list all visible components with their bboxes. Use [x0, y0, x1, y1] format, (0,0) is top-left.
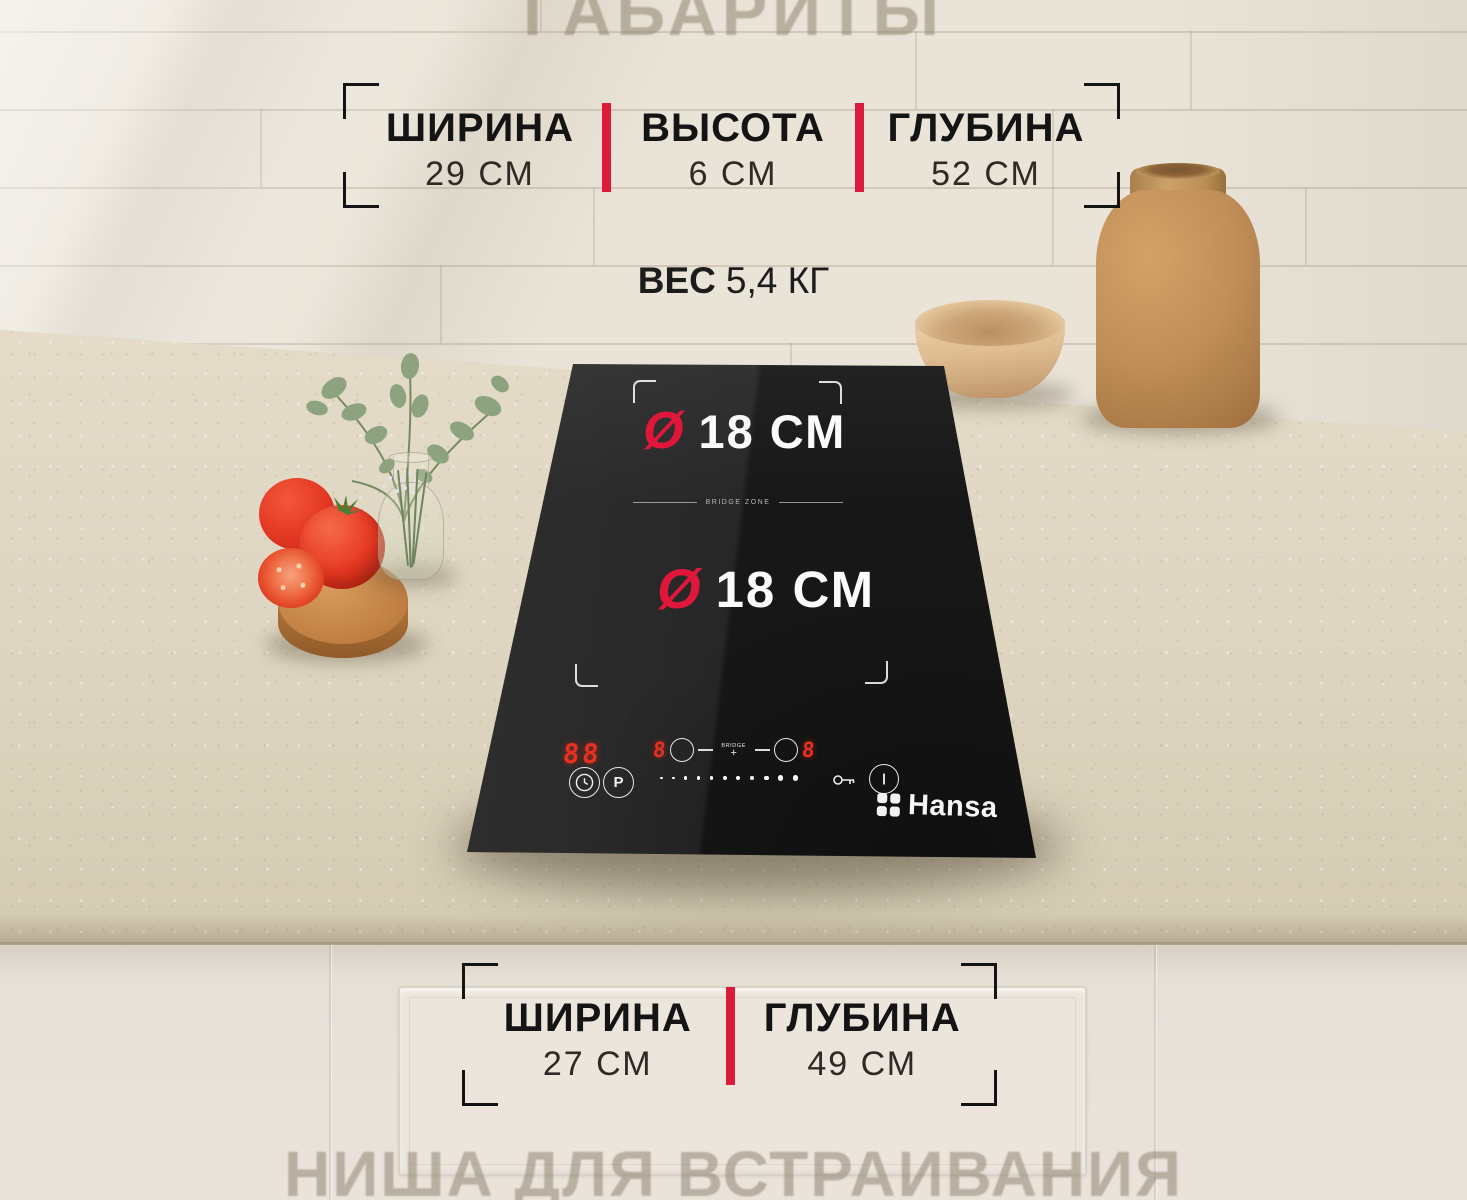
dimension-value: 27 СМ: [470, 1047, 726, 1081]
zone2-diameter-label: Ø 18 СМ: [657, 561, 875, 617]
jug-mouth: [1136, 163, 1220, 179]
bridge-plus: +: [717, 749, 751, 757]
bowl-rim: [915, 300, 1065, 346]
dimension-label: ГЛУБИНА: [735, 998, 991, 1038]
timer-display: 88: [562, 741, 603, 768]
watermark-top: ГАБАРИТЫ: [0, 0, 1467, 46]
dimension-label: ШИРИНА: [470, 998, 726, 1038]
zone2-diameter-value: 18 СМ: [716, 564, 876, 615]
slider-dot[interactable]: [793, 775, 798, 780]
bridge-control[interactable]: 8 BRIDGE + 8: [653, 736, 814, 764]
dimension-label: ШИРИНА: [358, 108, 602, 148]
tile-grout: [260, 109, 262, 187]
bridge-link-line: [698, 749, 713, 751]
bridge-link-label: BRIDGE +: [717, 743, 751, 757]
slider-dot[interactable]: [660, 777, 663, 780]
jug-body: [1096, 190, 1260, 428]
red-divider: [855, 103, 864, 192]
zone2-bracket-bl: [575, 664, 598, 687]
hansa-dots-icon: [877, 793, 901, 817]
niche-width: ШИРИНА 27 СМ: [470, 998, 726, 1090]
power-slider-dots[interactable]: [660, 773, 798, 783]
red-divider: [602, 103, 611, 192]
bridge-zone-circle-left: [670, 738, 694, 762]
dimensions-bottom: ШИРИНА 27 СМ ГЛУБИНА 49 СМ: [470, 985, 990, 1090]
red-divider: [726, 987, 735, 1085]
slider-dot[interactable]: [672, 777, 675, 780]
dimension-value: 29 СМ: [358, 157, 602, 191]
timer-button[interactable]: [569, 767, 600, 798]
slider-dot[interactable]: [778, 775, 783, 780]
watermark-bottom: НИША ДЛЯ ВСТРАИВАНИЯ: [0, 1142, 1467, 1200]
dimension-value: 49 СМ: [735, 1047, 991, 1081]
key-lock-icon[interactable]: [832, 772, 858, 788]
vase-rim: [389, 452, 433, 463]
dimension-depth: ГЛУБИНА 52 СМ: [864, 108, 1108, 206]
tile-grout: [1305, 187, 1307, 265]
niche-depth: ГЛУБИНА 49 СМ: [735, 998, 991, 1090]
diameter-icon: Ø: [643, 405, 683, 457]
boost-button[interactable]: P: [603, 767, 634, 798]
product-infographic: ГАБАРИТЫ: [0, 0, 1467, 1200]
weight-label: ВЕС: [638, 260, 716, 301]
dimension-value: 52 СМ: [864, 157, 1108, 191]
bridge-display-right: 8: [801, 740, 815, 761]
bridge-line-left: [633, 502, 697, 504]
dimension-height: ВЫСОТА 6 СМ: [611, 108, 855, 206]
power-icon: [875, 770, 893, 788]
slider-dot[interactable]: [723, 776, 727, 780]
zone1-diameter-value: 18 СМ: [698, 408, 846, 455]
bridge-zone-divider: BRIDGE ZONE: [633, 499, 843, 506]
weight-value: 5,4 КГ: [726, 260, 829, 301]
slider-dot[interactable]: [710, 776, 714, 780]
dimensions-top: ШИРИНА 29 СМ ВЫСОТА 6 СМ ГЛУБИНА 52 СМ: [358, 84, 1108, 206]
brand-name: Hansa: [908, 791, 999, 823]
brand-logo: Hansa: [877, 790, 998, 823]
dimension-width: ШИРИНА 29 СМ: [358, 108, 602, 206]
bridge-line-right: [779, 502, 843, 504]
dimension-value: 6 СМ: [611, 157, 855, 191]
boost-label: P: [613, 774, 623, 791]
dimension-label: ВЫСОТА: [611, 108, 855, 148]
slider-dot[interactable]: [764, 776, 769, 781]
zone1-bracket-tr: [819, 381, 842, 404]
tomato-half: [258, 548, 324, 608]
bridge-zone-circle-right: [774, 738, 798, 762]
counter-edge-shade: [0, 914, 1467, 942]
glass-vase: [378, 452, 442, 578]
zone2-bracket-br: [865, 661, 888, 684]
zone1-diameter-label: Ø 18 СМ: [643, 405, 846, 457]
zone1-bracket-tl: [633, 380, 656, 403]
dimension-label: ГЛУБИНА: [864, 108, 1108, 148]
slider-dot[interactable]: [684, 776, 687, 779]
weight-line: ВЕС5,4 КГ: [0, 262, 1467, 299]
bridge-link-line: [755, 749, 770, 751]
bridge-zone-label: BRIDGE ZONE: [706, 499, 771, 506]
slider-dot[interactable]: [697, 776, 700, 779]
slider-dot[interactable]: [750, 776, 755, 781]
bridge-display-left: 8: [652, 740, 666, 761]
diameter-icon: Ø: [657, 561, 701, 617]
slider-dot[interactable]: [736, 776, 740, 780]
clock-icon: [575, 773, 594, 792]
